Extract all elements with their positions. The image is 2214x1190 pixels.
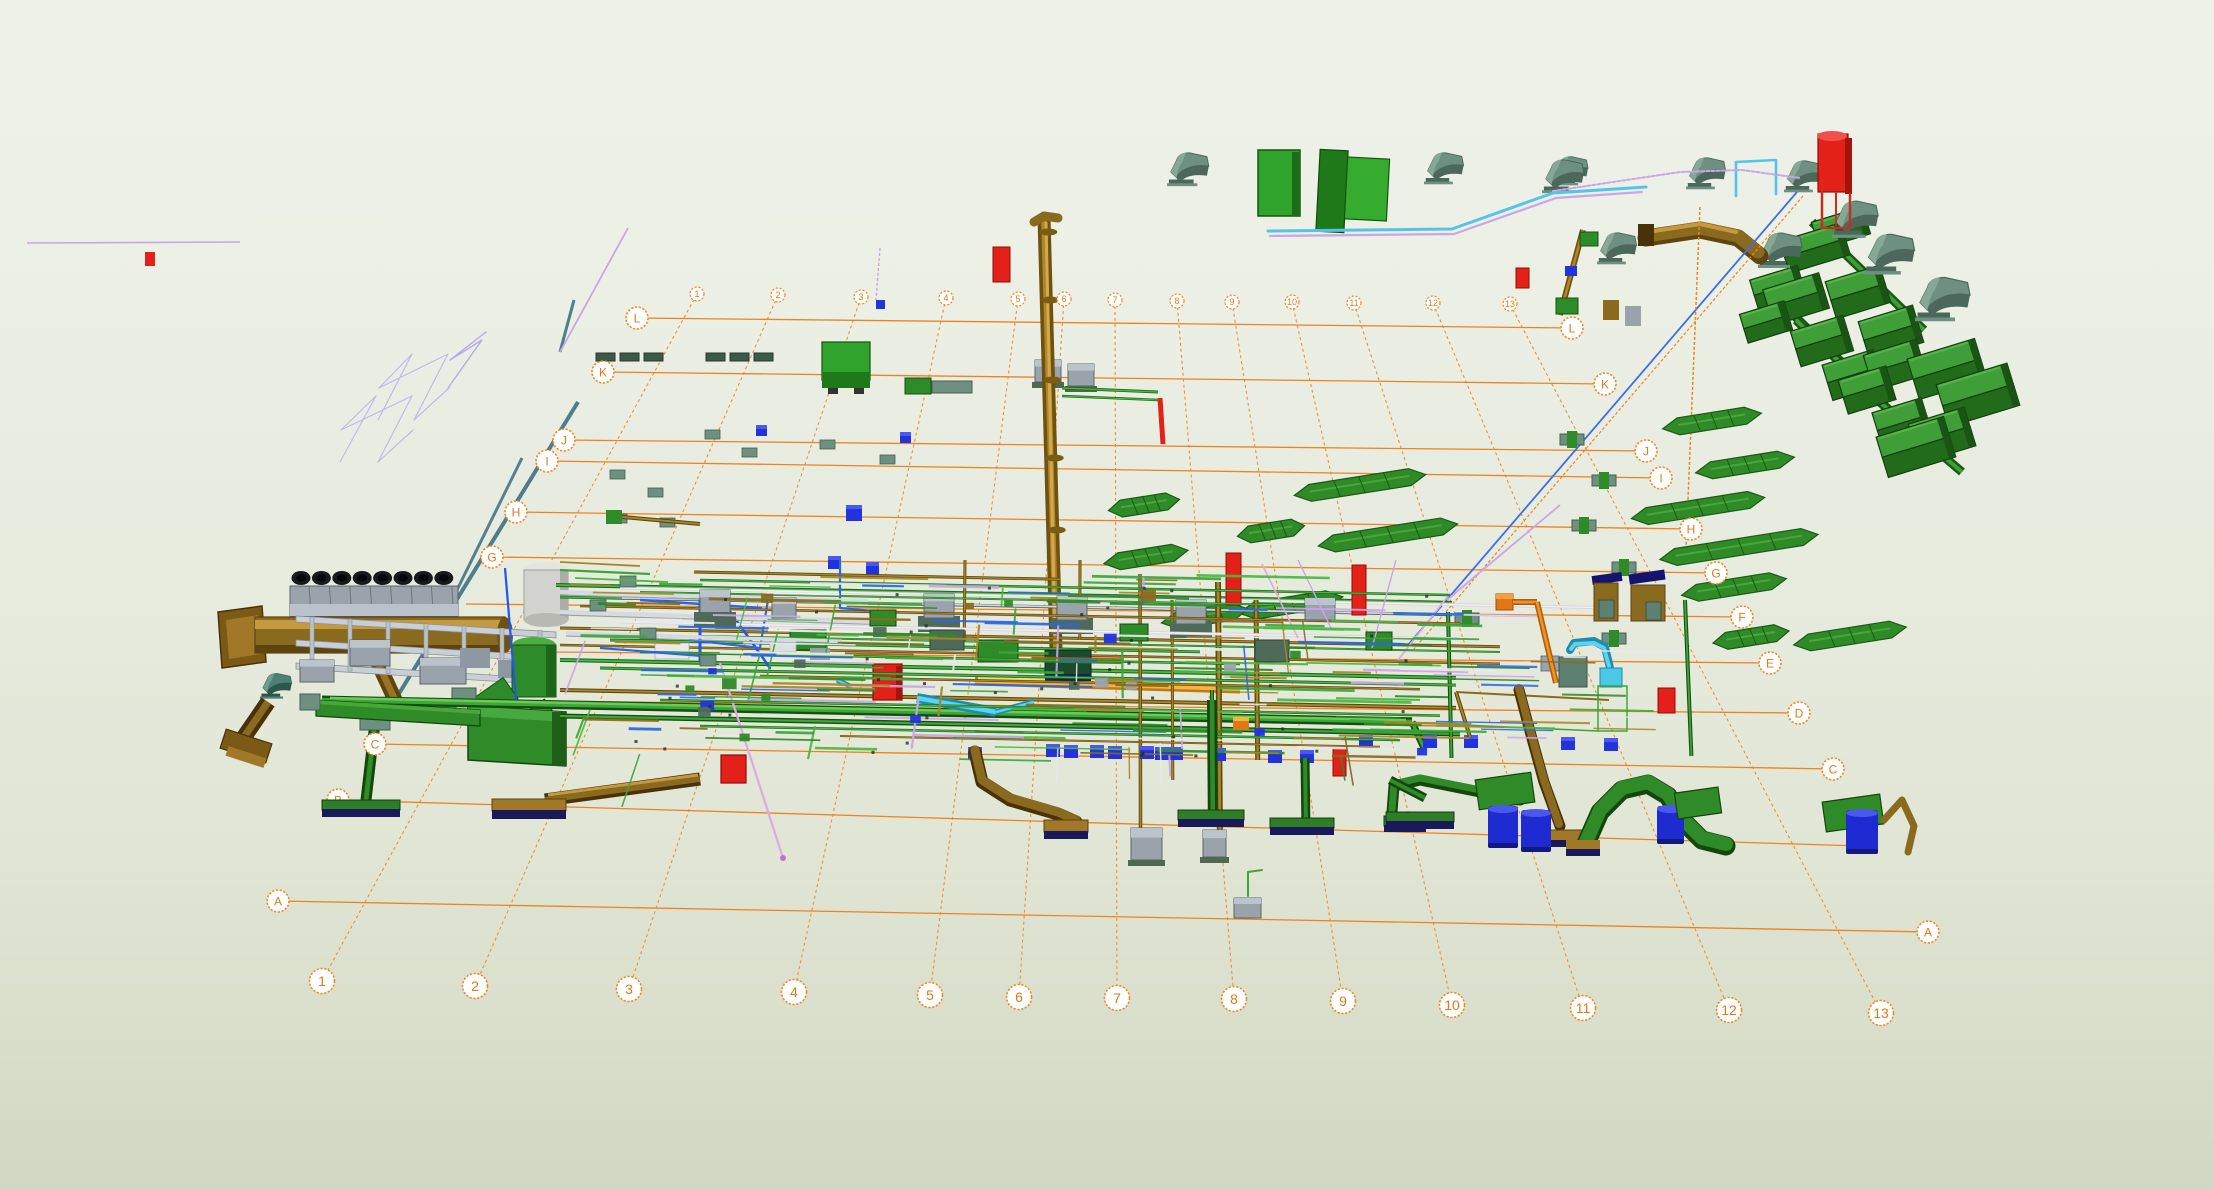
svg-text:1: 1	[318, 973, 326, 989]
svg-text:I: I	[545, 454, 548, 468]
svg-text:10: 10	[1287, 297, 1297, 307]
svg-text:3: 3	[858, 292, 863, 302]
svg-text:7: 7	[1113, 990, 1121, 1006]
svg-text:I: I	[1659, 471, 1662, 485]
svg-text:A: A	[1924, 925, 1932, 939]
svg-text:2: 2	[775, 290, 780, 300]
svg-text:11: 11	[1349, 298, 1358, 308]
svg-text:12: 12	[1721, 1002, 1737, 1018]
svg-text:10: 10	[1444, 997, 1460, 1013]
svg-text:4: 4	[943, 293, 948, 303]
svg-text:D: D	[1795, 706, 1804, 720]
svg-text:C: C	[371, 737, 380, 751]
svg-text:2: 2	[471, 978, 479, 994]
svg-text:7: 7	[1112, 295, 1117, 305]
svg-text:K: K	[599, 365, 607, 379]
svg-text:L: L	[634, 311, 641, 325]
svg-text:12: 12	[1428, 298, 1438, 308]
svg-text:H: H	[1687, 522, 1696, 536]
svg-text:F: F	[1738, 610, 1745, 624]
svg-text:J: J	[1643, 444, 1649, 458]
svg-text:H: H	[512, 505, 521, 519]
svg-text:4: 4	[790, 984, 798, 1000]
svg-text:L: L	[1569, 321, 1576, 335]
svg-text:8: 8	[1230, 991, 1238, 1007]
svg-text:G: G	[1711, 566, 1720, 580]
svg-text:6: 6	[1061, 294, 1066, 304]
svg-text:K: K	[1601, 377, 1609, 391]
svg-text:13: 13	[1505, 299, 1515, 309]
svg-text:5: 5	[1015, 294, 1020, 304]
svg-text:1: 1	[694, 289, 699, 299]
svg-text:8: 8	[1174, 296, 1179, 306]
svg-text:E: E	[1766, 656, 1774, 670]
svg-text:J: J	[561, 433, 567, 447]
svg-text:C: C	[1829, 762, 1838, 776]
svg-text:9: 9	[1229, 297, 1234, 307]
svg-text:6: 6	[1015, 989, 1023, 1005]
svg-text:11: 11	[1576, 1000, 1591, 1016]
svg-text:5: 5	[926, 987, 934, 1003]
svg-text:G: G	[487, 550, 496, 564]
svg-text:9: 9	[1339, 993, 1347, 1009]
svg-text:13: 13	[1873, 1005, 1889, 1021]
svg-text:A: A	[274, 894, 282, 908]
svg-text:3: 3	[625, 981, 633, 997]
